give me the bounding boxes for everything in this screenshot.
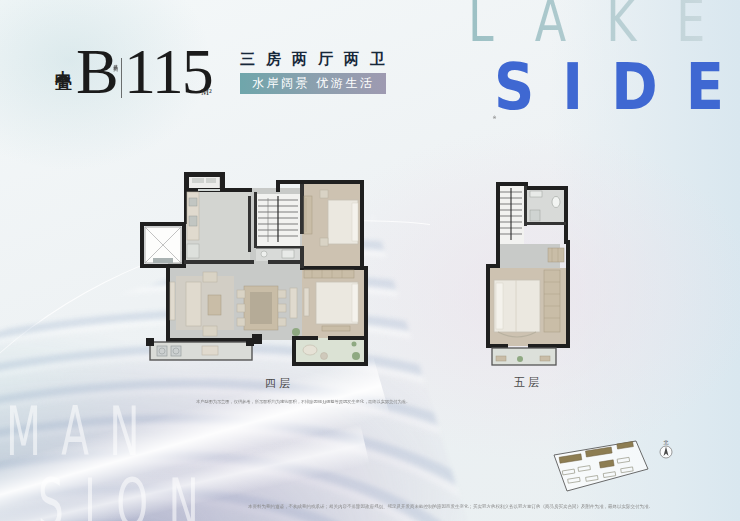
footnote-mark: ※ <box>493 115 497 121</box>
divider-line <box>121 58 122 98</box>
plant <box>292 328 300 336</box>
footer-disclaimer: 本资料为要约邀请，不构成要约或承诺；相关内容不排除因政府规划、规定及开发商未能控… <box>248 494 693 513</box>
elevator-shaft <box>140 222 186 268</box>
wardrobe <box>304 270 354 278</box>
watermark-row2: SION <box>38 470 219 521</box>
bedroom <box>494 270 560 337</box>
wardrobe <box>544 270 560 332</box>
compass-icon: 北 <box>660 439 672 458</box>
bed <box>316 282 358 324</box>
area-prefix-label: 建筑面积约 <box>112 61 118 90</box>
svg-text:北: 北 <box>664 439 669 446</box>
area-value: 115 <box>124 40 212 104</box>
floorplan-4f <box>140 168 378 374</box>
brand-line2: SIDE <box>494 55 740 119</box>
area-unit: M² <box>201 87 212 97</box>
plan-5f-label: 五层 <box>497 375 559 390</box>
sofa <box>186 282 201 326</box>
watermark-row1: MAN <box>6 398 160 466</box>
balcony <box>492 348 556 365</box>
coffee-table <box>208 295 221 315</box>
living-room <box>170 272 234 336</box>
washer <box>157 346 167 356</box>
sideboard <box>290 288 297 318</box>
floorplan-5f <box>482 180 574 372</box>
plan-4f-label: 四层 <box>248 376 310 391</box>
closet <box>548 248 564 262</box>
slogan-badge: 水岸阔景 优游生活 <box>240 73 386 94</box>
kitchen <box>187 192 199 258</box>
site-plan: 北 <box>548 438 680 498</box>
layout-spec: 三房两厅两卫 <box>240 50 396 69</box>
tv-cabinet <box>170 282 175 320</box>
plan-note: 本户型图为示意图，仅供参考，所示面积均为建筑面积，不排除因规划调整等原因发生变化… <box>150 390 385 409</box>
bench <box>322 326 350 331</box>
brand-line1: LAKE <box>468 0 740 50</box>
poster: MAN SION 中叠 B 建筑面积约 115 M² 三房两厅两卫 水岸阔景 优… <box>0 0 740 521</box>
product-type-label: 中叠 <box>56 56 76 64</box>
